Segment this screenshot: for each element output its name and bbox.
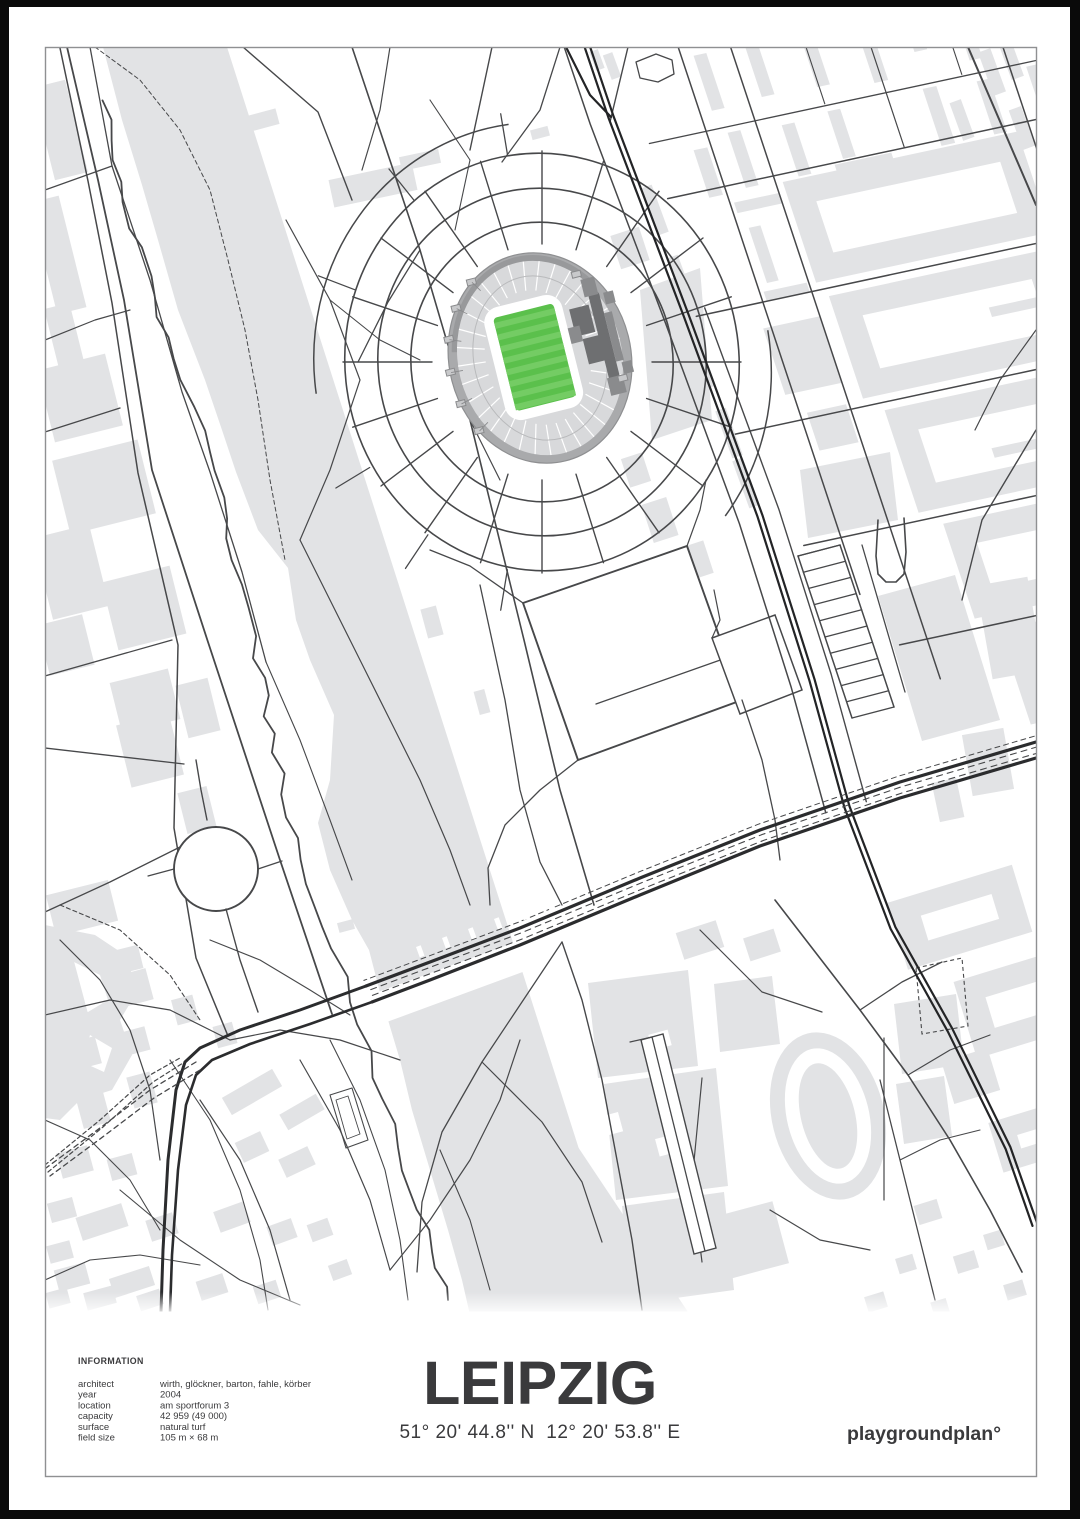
svg-text:42 959 (49 000): 42 959 (49 000) bbox=[160, 1411, 227, 1422]
svg-text:surface: surface bbox=[78, 1422, 109, 1433]
svg-text:2004: 2004 bbox=[160, 1390, 181, 1401]
svg-text:field size: field size bbox=[78, 1433, 115, 1444]
svg-text:am sportforum 3: am sportforum 3 bbox=[160, 1400, 229, 1411]
svg-text:LEIPZIG: LEIPZIG bbox=[423, 1349, 657, 1417]
svg-text:natural turf: natural turf bbox=[160, 1422, 206, 1433]
svg-text:INFORMATION: INFORMATION bbox=[78, 1356, 144, 1366]
svg-text:51° 20' 44.8'' N 12° 20' 53.8: 51° 20' 44.8'' N 12° 20' 53.8'' E bbox=[399, 1422, 680, 1443]
svg-text:playgroundplan°: playgroundplan° bbox=[847, 1423, 1001, 1445]
svg-text:location: location bbox=[78, 1400, 111, 1411]
svg-text:year: year bbox=[78, 1390, 96, 1401]
svg-text:105 m × 68 m: 105 m × 68 m bbox=[160, 1433, 218, 1444]
svg-text:capacity: capacity bbox=[78, 1411, 113, 1422]
svg-text:architect: architect bbox=[78, 1379, 114, 1390]
svg-text:wirth, glöckner, barton, fahle: wirth, glöckner, barton, fahle, körber bbox=[159, 1379, 311, 1390]
